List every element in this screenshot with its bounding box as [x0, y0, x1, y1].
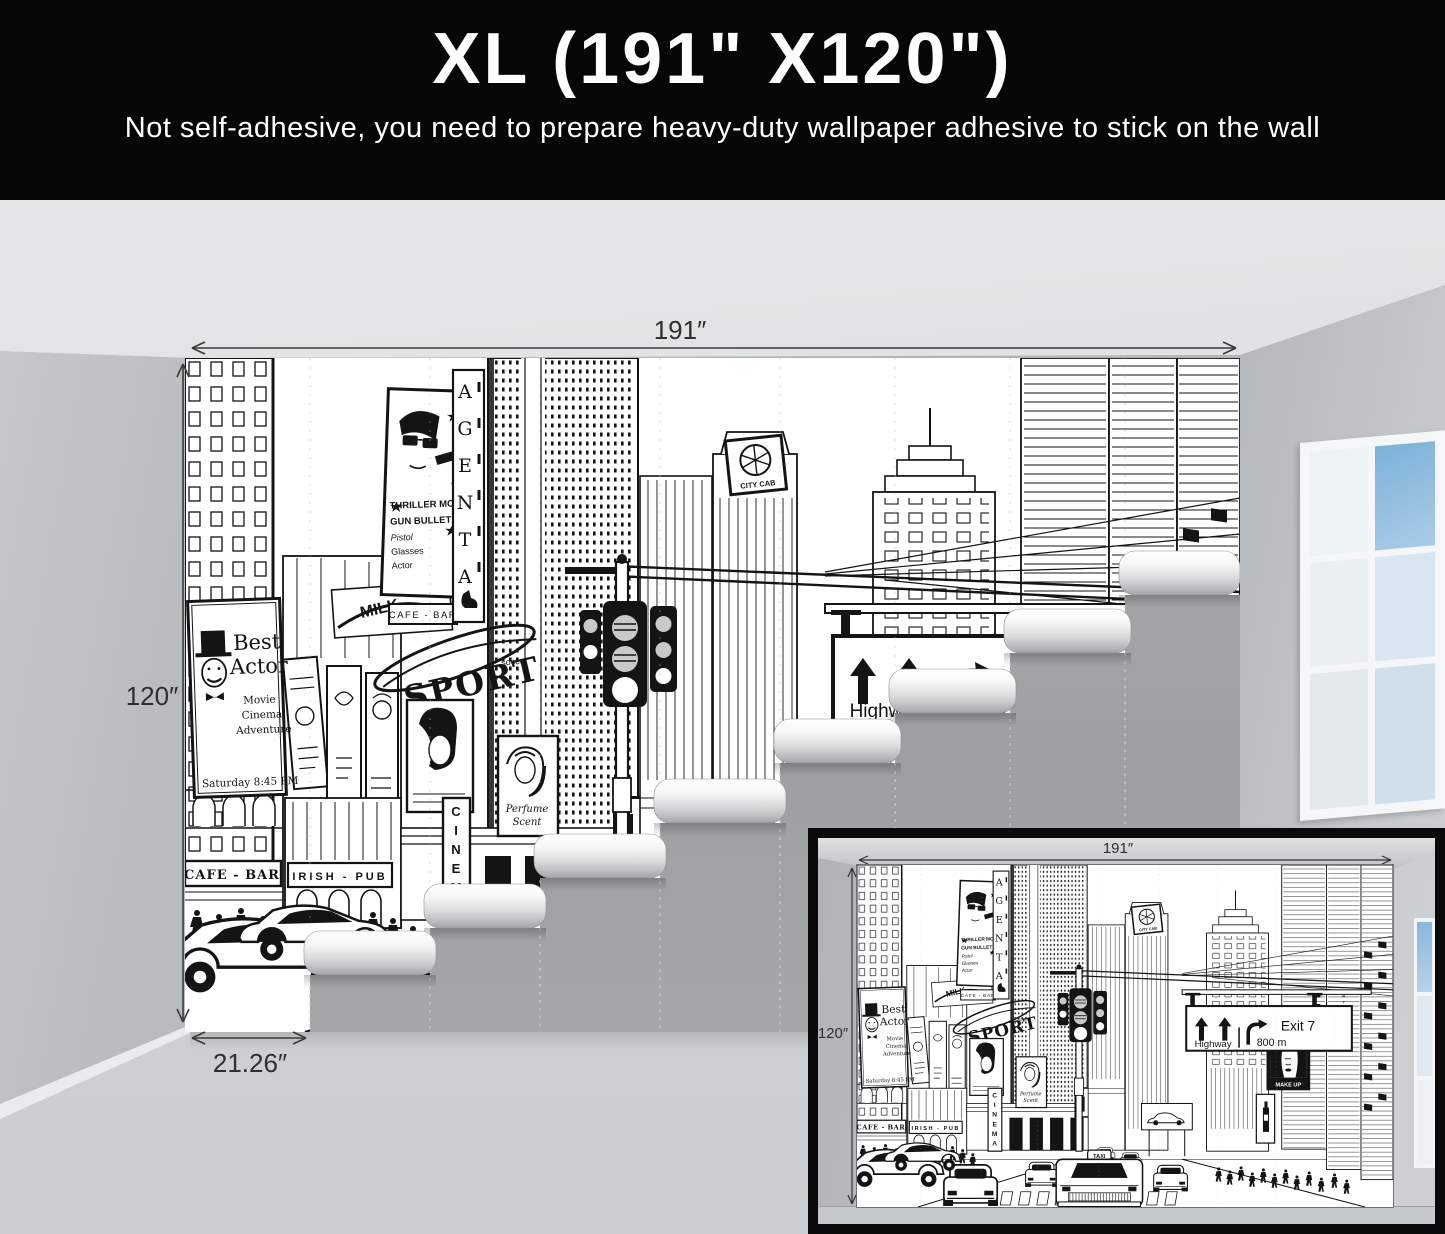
- product-size-diagram: XL (191" X120") Not self-adhesive, you n…: [0, 0, 1445, 1234]
- window-pane: [1310, 558, 1368, 667]
- adhesive-note: Not self-adhesive, you need to prepare h…: [0, 112, 1445, 145]
- inset-room: 191″ 120″: [818, 838, 1435, 1224]
- room-scene: MILK Best Ac: [0, 200, 1445, 1234]
- window: [1300, 430, 1445, 821]
- window-pane: [1375, 552, 1435, 661]
- header-banner: XL (191" X120") Not self-adhesive, you n…: [0, 0, 1445, 200]
- inset-ceiling: [818, 838, 1435, 868]
- window-pane-sky: [1375, 441, 1435, 550]
- inset-floor: [818, 1206, 1435, 1224]
- inset-mural: [857, 865, 1393, 1207]
- window-pane: [1375, 663, 1435, 804]
- inset-height-label: 120″: [818, 1025, 849, 1042]
- size-title: XL (191" X120"): [0, 0, 1445, 98]
- inset-window: [1414, 918, 1435, 1168]
- window-pane: [1310, 447, 1368, 556]
- finished-mural-inset: 191″ 120″: [808, 828, 1445, 1234]
- window-pane: [1310, 669, 1368, 810]
